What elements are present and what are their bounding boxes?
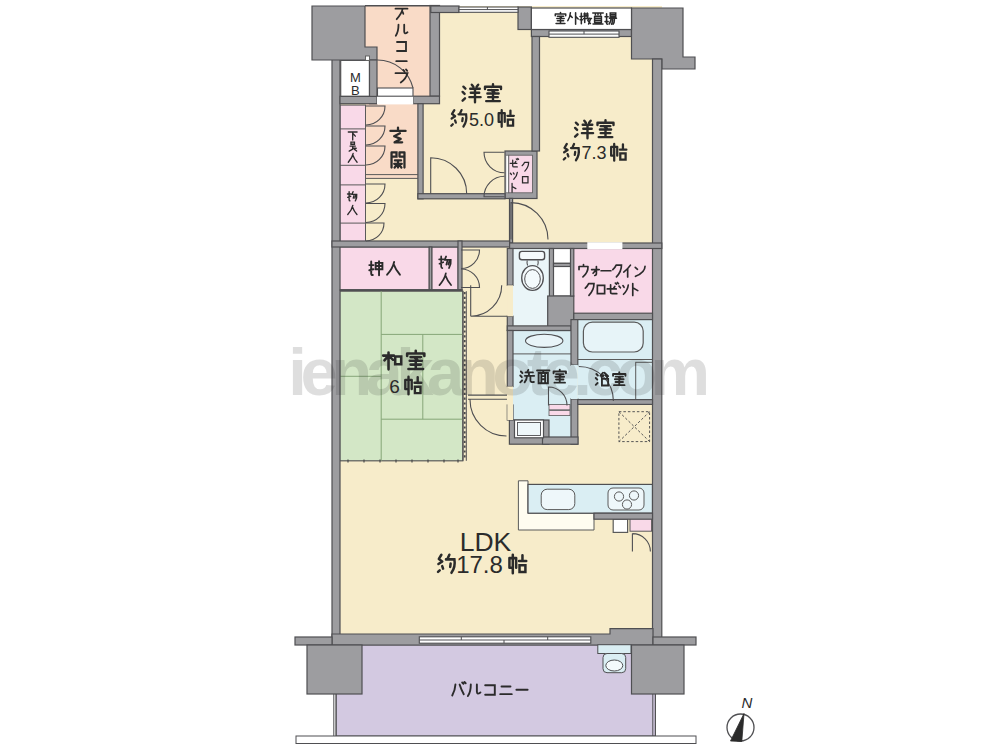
svg-text:N: N	[742, 694, 753, 711]
svg-text:ienakanote.com: ienakanote.com	[288, 334, 706, 409]
svg-text:5.0: 5.0	[469, 110, 494, 130]
svg-text:17.8: 17.8	[456, 551, 503, 578]
svg-text:7.3: 7.3	[581, 143, 606, 163]
svg-text:B: B	[351, 83, 360, 98]
